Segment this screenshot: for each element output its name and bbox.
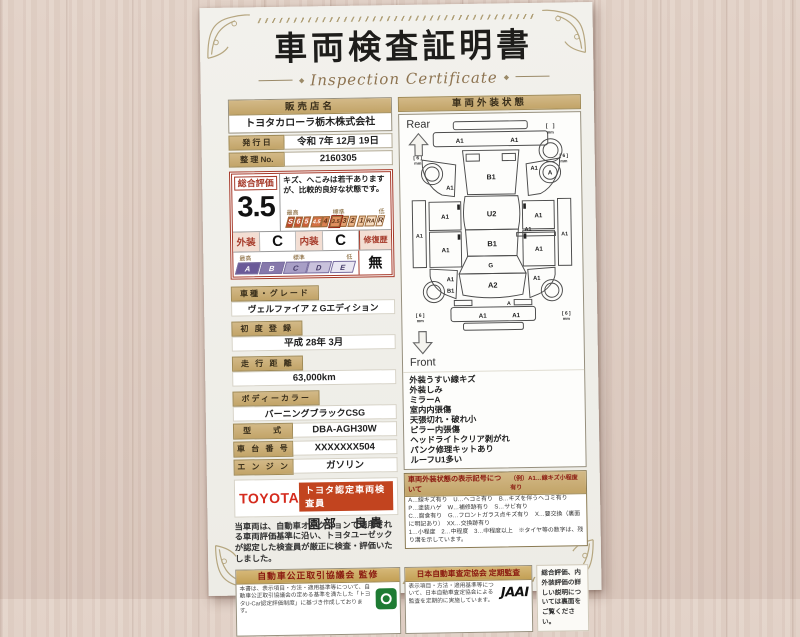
scale-legend-mid: 標準 (333, 206, 345, 215)
overall-rating-label: 総合評価 (234, 176, 277, 191)
serial-number-value: 2160305 (285, 150, 393, 167)
mark-front-bumper-right: A1 (512, 312, 521, 319)
serial-number-row: 整 理 No. 2160305 (229, 150, 393, 168)
serial-number-label: 整 理 No. (229, 151, 285, 167)
subtitle-line (515, 76, 549, 78)
rear-label: Rear (406, 118, 430, 130)
exterior-condition-header: 車両外装状態 (398, 94, 581, 112)
arrow-up-icon (407, 131, 429, 157)
symbol-legend-box: 車両外装状態の表示記号について （例）A1…線キズ小程度有り A…線キズ有り U… (404, 470, 588, 549)
detail-mileage: 走 行 距 離 63,000km (232, 351, 396, 387)
tire-depth-fr-mm: mm (562, 315, 570, 320)
detail-value: 平成 28年 3月 (232, 334, 396, 352)
back-door-shape (462, 149, 519, 194)
mark-windshield: G (488, 262, 493, 269)
detail-body-color: ボディーカラー バーニングブラックCSG (232, 386, 396, 422)
condition-notes: 外装うすい線キズ 外装しみ ミラーA 室内内張傷 天張切れ・破れ小 ピラー内張傷… (403, 369, 585, 466)
detail-type-row: 型 式 DBA-AGH30W (233, 421, 397, 440)
jaai-body: 表示項目・方法・適用基準等について、日本自動車査定協会による監査を定期的に実施し… (408, 582, 498, 606)
scale-legend-low: 低 (379, 206, 385, 215)
mark-rear-bumper-left: A1 (455, 137, 464, 144)
overall-rating-score: 3.5 (234, 190, 278, 225)
grade-cell: D (306, 261, 332, 273)
detail-value: ヴェルファイア Z Gエディション (231, 299, 395, 317)
mark-left-sill: A1 (415, 233, 422, 239)
detail-value: ガソリン (293, 457, 397, 474)
mark-roof: U2 (486, 209, 496, 218)
mark-left-front-corner: B1 (446, 288, 454, 294)
detail-label: 走 行 距 離 (232, 355, 303, 371)
legend-example: （例）A1…線キズ小程度有り (510, 472, 583, 491)
grade-cell: E (330, 260, 356, 272)
rear-direction: Rear (406, 118, 430, 157)
footer: 自動車公正取引協議会 監修 本書は、表示項目・方法・適用基準等について、自動車公… (235, 564, 589, 637)
spare-tire-mm: mm (546, 129, 554, 134)
repair-history-label: 修復歴 (359, 230, 391, 250)
tire-depth-rr-mm: mm (560, 158, 568, 163)
mark-side-molding: A1 (524, 226, 531, 232)
inspection-disclaimer: 当車両は、自動車オークションで適用される車両評価基準に沿い、トヨタユーゼックが認… (234, 519, 399, 565)
tire-depth-rl-mm: mm (414, 160, 422, 165)
subtitle-ornament-icon: ◆ (299, 76, 305, 84)
seller-box: 販売店名 トヨタカローラ栃木株式会社 (228, 97, 393, 134)
exterior-grade: C (260, 231, 296, 251)
mark-front: A (506, 301, 510, 307)
detail-value: DBA-AGH30W (293, 421, 397, 438)
mark-left-door-front: A1 (441, 247, 450, 254)
overall-rating-box: 総合評価 3.5 キズ、へこみは若干ありますが、比較的良好な状態です。 最高 標… (229, 169, 395, 280)
certificate-title: 車両検査証明書 (227, 24, 581, 69)
jaai-box: 日本自動車査定協会 定期監査 表示項目・方法・適用基準等について、日本自動車査定… (404, 565, 533, 634)
detail-label: 車種・グレード (231, 285, 319, 301)
tire-depth-fl-mm: mm (416, 318, 424, 323)
exterior-label: 外装 (233, 232, 260, 251)
mark-roof-rear: B1 (487, 239, 497, 248)
front-bumper-shape (450, 306, 535, 321)
detail-label: エ ン ジ ン (233, 458, 293, 475)
mark-right-door-front: A1 (534, 245, 543, 252)
subtitle-ornament-icon: ◆ (504, 73, 510, 81)
detail-chassis-row: 車 台 番 号 XXXXXXX504 (233, 439, 397, 458)
scale-legend-high: 最高 (239, 253, 251, 262)
issue-date-row: 発 行 日 令和 7年 12月 19日 (228, 133, 392, 151)
vehicle-details: 車種・グレード ヴェルファイア Z Gエディション 初 度 登 録 平成 28年… (231, 281, 398, 476)
left-column: 販売店名 トヨタカローラ栃木株式会社 発 行 日 令和 7年 12月 19日 整… (228, 97, 399, 565)
scale-legend-high: 最高 (287, 207, 299, 216)
detail-engine-row: エ ン ジ ン ガソリン (233, 457, 397, 476)
toyota-logo: TOYOTA (239, 489, 299, 506)
detail-label: 型 式 (233, 422, 293, 439)
certificate-subtitle-row: ◆ Inspection Certificate ◆ (227, 67, 580, 91)
mark-right-quarter: A1 (530, 165, 538, 171)
interior-grade: C (323, 230, 359, 250)
seller-name: トヨタカローラ栃木株式会社 (229, 113, 391, 133)
fair-trade-box: 自動車公正取引協議会 監修 本書は、表示項目・方法・適用基準等について、自動車公… (235, 567, 401, 637)
mark-left-fender: A1 (446, 277, 454, 283)
reverse-side-note: 総合評価、内外装評価の詳しい説明については裏面をご覧ください。 (536, 564, 589, 632)
detail-model: 車種・グレード ヴェルファイア Z Gエディション (231, 281, 395, 317)
mark-back-door: B1 (486, 174, 495, 181)
certified-inspector-badge: トヨタ認定車両検査員 (299, 481, 393, 511)
scale-legend-low: 低 (346, 251, 352, 260)
mark-right-door-rear: A1 (534, 212, 543, 219)
detail-value: バーニングブラックCSG (233, 404, 397, 422)
grade-cell: A (235, 262, 261, 274)
fair-trade-body: 本書は、表示項目・方法・適用基準等について、自動車公正取引協議会の定める基準を満… (239, 584, 372, 616)
right-column: 車両外装状態 Rear Front (398, 94, 588, 562)
detail-label: 初 度 登 録 (231, 320, 302, 336)
arrow-down-icon (411, 329, 433, 355)
mark-front-bumper-left: A1 (478, 312, 487, 319)
detail-label: 車 台 番 号 (233, 440, 293, 457)
detail-label: ボディーカラー (232, 390, 320, 406)
rating-comment: キズ、へこみは若干ありますが、比較的良好な状態です。 (283, 174, 387, 208)
rear-spoiler-shape (453, 120, 527, 129)
scale-legend-mid: 標準 (293, 252, 305, 261)
grade-cell: B (259, 261, 285, 273)
mark-hood: A2 (487, 280, 497, 289)
mark-right-fender: A1 (533, 275, 541, 281)
issue-date-label: 発 行 日 (228, 134, 284, 150)
interior-label: 内装 (296, 231, 323, 250)
jaai-logo: JAAI (501, 585, 529, 600)
mark-rear-bumper-right: A1 (510, 136, 519, 143)
mark-left-door-rear: A1 (441, 213, 450, 220)
detail-first-registration: 初 度 登 録 平成 28年 3月 (231, 316, 395, 352)
legend-line: 1…小程度 2…中程度 3…中程度以上 ※タイヤ等の数字は、残り溝を示しています… (409, 527, 584, 546)
spare-tire-depth: [ ] (545, 123, 554, 129)
certificate-paper: 車両検査証明書 ◆ Inspection Certificate ◆ 販売店名 … (199, 2, 601, 596)
rating-scale-bar: S 6 5 4.5 4 3.5 3 2 1 RA (284, 215, 388, 229)
front-label: Front (410, 356, 436, 368)
mark-left-quarter: A1 (446, 185, 454, 191)
condition-item: ルーフU1多い (410, 452, 579, 465)
certificate-subtitle: Inspection Certificate (310, 68, 498, 89)
subtitle-line (259, 80, 293, 82)
car-diagram: A1 A1 [ ] mm B1 A1 A1 A [ 6 ] mm [ 6 ] m… (409, 117, 574, 338)
grade-cell: C (282, 261, 308, 273)
rear-bumper-shape (433, 130, 548, 146)
inspector-box: TOYOTA トヨタ認定車両検査員 園部 良貴 (234, 477, 399, 518)
issue-date-value: 令和 7年 12月 19日 (284, 133, 392, 150)
legend-title: 車両外装状態の表示記号について (408, 473, 507, 495)
front-direction: Front (409, 329, 435, 368)
grade-scale-bar: A B C D E (236, 260, 355, 274)
detail-value: 63,000km (232, 369, 396, 387)
repair-history-value: 無 (359, 250, 391, 274)
mark-rear-right-tire: A (547, 169, 552, 176)
exterior-condition-panel: Rear Front (398, 111, 587, 470)
mark-right-sill: A1 (561, 231, 568, 237)
detail-value: XXXXXXX504 (293, 439, 397, 456)
